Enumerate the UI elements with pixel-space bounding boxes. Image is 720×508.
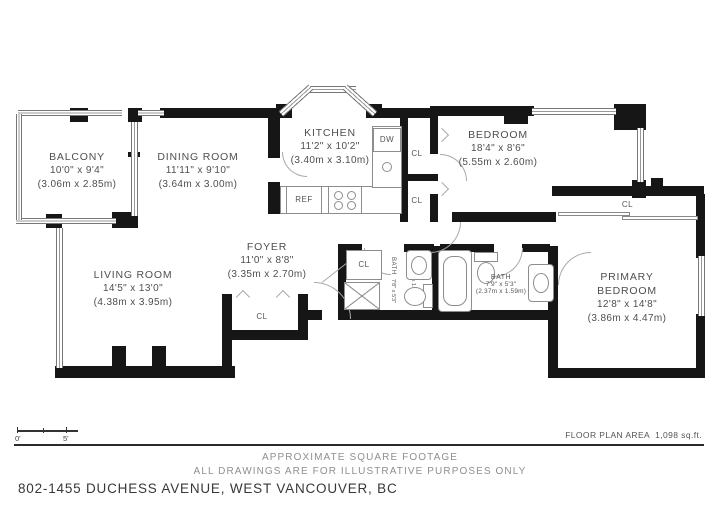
closet-label: CL [397,149,437,158]
sink [406,250,432,280]
dining-room-name: DINING ROOM [138,150,258,164]
bathtub-basin [443,256,467,306]
closet-label: CL [580,200,675,209]
balcony-name: BALCONY [18,150,136,164]
wall [614,104,646,130]
fireplace-block [152,346,166,368]
primary-bedroom-name-1: PRIMARY [564,270,690,284]
scale-bar [17,430,78,432]
bedroom-metric: (5.55m x 2.60m) [432,156,564,170]
bedroom-name: BEDROOM [432,128,564,142]
bath-small-label: BATH 7'8" x 5'3" (2.35m x 1.59m) [383,250,401,310]
toilet-tank [474,252,498,262]
kitchen-label: KITCHEN 11'2" x 10'2" (3.40m x 3.10m) [280,126,380,167]
wall [548,312,558,372]
dining-room-label: DINING ROOM 11'11" x 9'10" (3.64m x 3.00… [138,150,258,191]
bath-small-size: 7'8" x 5'3" [390,279,396,303]
balcony-metric: (3.06m x 2.85m) [18,178,136,192]
address: 802-1455 DUCHESS AVENUE, WEST VANCOUVER,… [18,481,398,496]
wall [224,330,308,340]
closet-label: CL [397,196,437,205]
kitchen-name: KITCHEN [280,126,380,140]
burner [347,191,356,200]
scale-start-label: 0' [15,434,21,443]
wall [651,178,663,188]
living-room-metric: (4.38m x 3.95m) [58,296,208,310]
wall [298,294,308,340]
wall [452,212,556,222]
sliding-closet-door [622,216,698,220]
kitchen-size: 11'2" x 10'2" [280,140,380,154]
wall [400,174,438,181]
scale-tick [43,428,44,433]
fireplace-block [112,346,126,368]
bay-window [279,85,313,117]
bedroom-label: BEDROOM 18'4" x 8'6" (5.55m x 2.60m) [432,128,564,169]
burner [334,191,343,200]
foyer-name: FOYER [208,240,326,254]
bath-main-label: BATH 7'9" x 5'3" (2.37m x 1.59m) [468,274,534,295]
wall [55,366,235,378]
bifold-door-mark [276,290,290,304]
kitchen-sink [382,162,392,172]
foyer-metric: (3.35m x 2.70m) [208,268,326,282]
wall [522,244,550,252]
living-room-label: LIVING ROOM 14'5" x 13'0" (4.38m x 3.95m… [58,268,208,309]
bath-main-size: 7'9" x 5'3" [468,281,534,288]
toilet-bowl [404,287,426,306]
sliding-closet-door [558,212,630,216]
bedroom-size: 18'4" x 8'6" [432,142,564,156]
wall [696,194,705,258]
wall [268,182,280,214]
shower [344,282,380,310]
bifold-door-mark [236,290,250,304]
stove [328,186,362,214]
dining-room-size: 11'11" x 9'10" [138,164,258,178]
wall [430,106,534,116]
wall [160,108,274,118]
bath-main-name: BATH [468,274,534,281]
burner [347,201,356,210]
dining-room-metric: (3.64m x 3.00m) [138,178,258,192]
window [637,128,644,182]
foyer-size: 11'0" x 8'8" [208,254,326,268]
sink-basin [533,273,549,293]
sink-basin [411,256,427,275]
closet-label: CL [240,312,284,321]
closet-box: CL [346,250,382,280]
balcony-size: 10'0" x 9'4" [18,164,136,178]
wall [552,186,704,196]
primary-bedroom-size: 12'8" x 14'8" [564,298,690,312]
window [698,256,705,316]
scale-end-label: 5' [63,434,69,443]
scale-tick [17,427,18,433]
divider [14,444,704,446]
bathtub [438,250,472,312]
door-arc [494,248,523,277]
balcony-label: BALCONY 10'0" x 9'4" (3.06m x 2.85m) [18,150,136,191]
footer-line-2: ALL DRAWINGS ARE FOR ILLUSTRATIVE PURPOS… [0,466,720,477]
closet-label: CL [347,260,381,269]
bath-small-name: BATH [390,257,396,275]
living-room-name: LIVING ROOM [58,268,208,282]
window [532,108,616,115]
wall [504,116,528,124]
primary-bedroom-label: PRIMARY BEDROOM 12'8" x 14'8" (3.86m x 4… [564,270,690,325]
primary-bedroom-name-2: BEDROOM [564,284,690,298]
refrigerator-label: REF [287,195,321,204]
primary-bedroom-metric: (3.86m x 4.47m) [564,312,690,326]
footer-line-1: APPROXIMATE SQUARE FOOTAGE [0,452,720,463]
foyer-label: FOYER 11'0" x 8'8" (3.35m x 2.70m) [208,240,326,281]
window [16,218,116,224]
scale-tick [66,427,67,433]
wall [548,368,705,378]
floor-plan-page: REF DW CL BATH 7'8" x 5'3" (2.35m x 1.59… [0,0,720,508]
floor-plan-area-note: FLOOR PLAN AREA 1,098 sq.ft. [400,430,702,440]
kitchen-metric: (3.40m x 3.10m) [280,154,380,168]
window [18,110,122,116]
bay-window [343,85,377,117]
burner [334,201,343,210]
refrigerator: REF [286,186,322,214]
bath-main-metric: (2.37m x 1.59m) [468,288,534,295]
window [138,110,164,116]
living-room-size: 14'5" x 13'0" [58,282,208,296]
